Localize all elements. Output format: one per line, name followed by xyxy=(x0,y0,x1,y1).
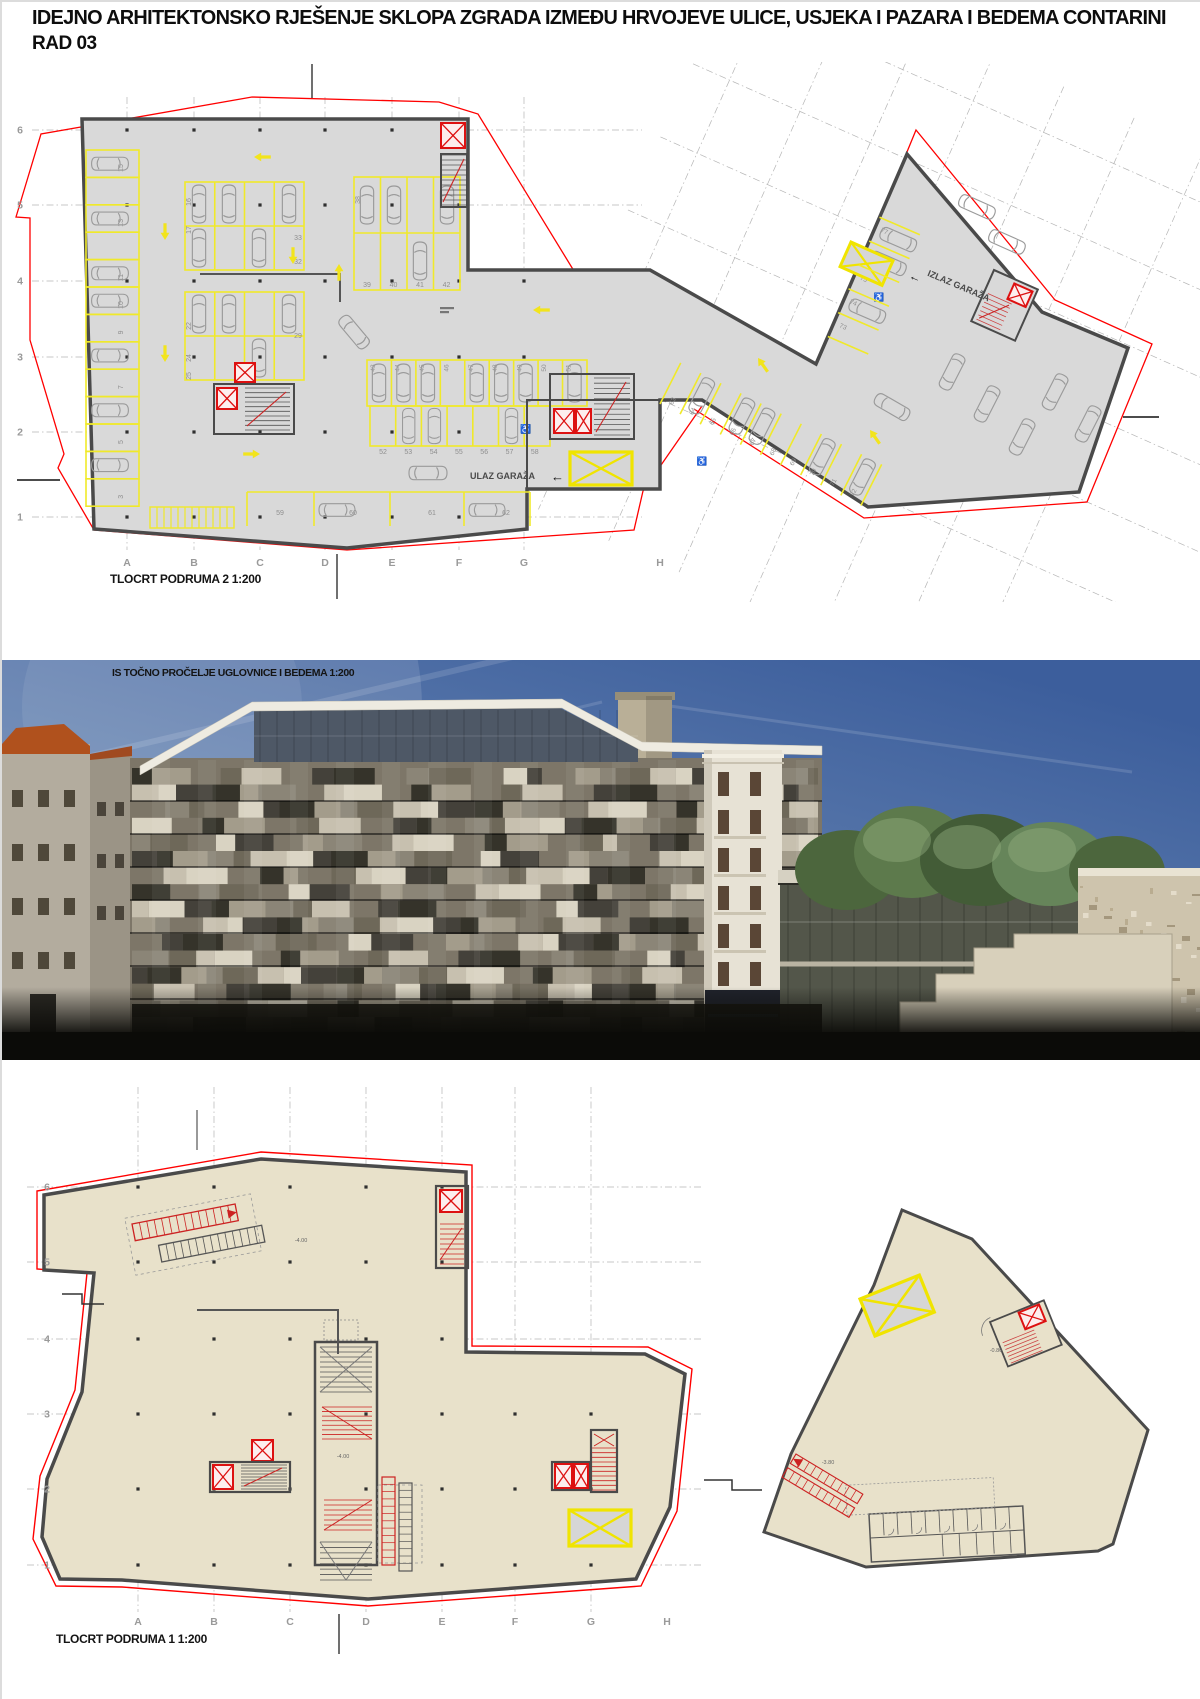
vent-shaft-icon xyxy=(569,1510,631,1546)
label: 41 xyxy=(416,282,424,289)
label: 4 xyxy=(44,1334,50,1346)
label: 40 xyxy=(390,282,398,289)
label: 46 xyxy=(443,364,450,372)
label: 59 xyxy=(276,510,284,517)
elevator-icon xyxy=(440,1190,462,1212)
label: 3 xyxy=(17,352,23,364)
label: A xyxy=(123,557,131,569)
label: E xyxy=(438,1616,445,1628)
label: 25 xyxy=(186,372,193,380)
elevator-icon xyxy=(217,388,237,409)
label: 52 xyxy=(379,449,387,456)
label: G xyxy=(520,557,528,569)
label: 24 xyxy=(186,354,193,362)
plan2-caption: TLOCRT PODRUMA 2 1:200 xyxy=(110,572,261,586)
label: 38 xyxy=(355,196,362,204)
label: D xyxy=(321,557,329,569)
label: 6 xyxy=(44,1182,50,1194)
label: 62 xyxy=(502,510,510,517)
label: 67 xyxy=(749,437,759,447)
label: 5 xyxy=(44,1257,50,1269)
label: 6 xyxy=(17,125,23,137)
label: C xyxy=(256,557,264,569)
label: 29 xyxy=(294,333,302,340)
label: 53 xyxy=(404,449,412,456)
label: -4.00 xyxy=(337,1454,350,1460)
label: 3 xyxy=(44,1409,50,1421)
label: 66 xyxy=(729,427,739,437)
label: 2 xyxy=(44,1484,50,1496)
label: A xyxy=(134,1616,142,1628)
vent-shaft-icon xyxy=(570,452,632,485)
entrance-arrow: ← xyxy=(551,469,564,484)
elevator-icon xyxy=(576,409,591,433)
label: 39 xyxy=(363,282,371,289)
elevator-icon xyxy=(441,123,465,148)
floor-plan-basement-2: 1513111097531617333222242529383940414243… xyxy=(2,62,1200,602)
label: F xyxy=(456,557,463,569)
label: 58 xyxy=(531,449,539,456)
label: 56 xyxy=(480,449,488,456)
label: 2 xyxy=(17,427,23,439)
label: B xyxy=(210,1616,218,1628)
label: D xyxy=(362,1616,370,1628)
vent-main xyxy=(569,1510,631,1546)
label: -0.80 xyxy=(990,1348,1003,1354)
label: 3 xyxy=(118,495,125,499)
label: 1 xyxy=(44,1560,50,1572)
label: E xyxy=(388,557,395,569)
vent-entrance xyxy=(570,452,632,485)
floor-right-piece xyxy=(764,1210,1148,1567)
label: H xyxy=(656,557,664,569)
street-shadow-band xyxy=(2,987,1200,1060)
elevator-icon xyxy=(235,363,255,382)
label: 65 xyxy=(708,416,718,426)
presentation-board: IDEJNO ARHITEKTONSKO RJEŠENJE SKLOPA ZGR… xyxy=(0,0,1200,1699)
label: G xyxy=(587,1616,595,1628)
label: 5 xyxy=(118,440,125,444)
entrance-label: ULAZ GARAŽA xyxy=(470,470,535,481)
label: 33 xyxy=(294,235,302,242)
label: ♿ xyxy=(697,456,708,466)
label: 9 xyxy=(118,330,125,334)
label: 55 xyxy=(455,449,463,456)
elevator-icon xyxy=(554,409,574,433)
label: 57 xyxy=(506,449,514,456)
elevator-icon xyxy=(574,1464,588,1488)
label: 17 xyxy=(186,226,193,234)
elevator-icon xyxy=(213,1465,233,1489)
label: 61 xyxy=(428,510,436,517)
title-block: IDEJNO ARHITEKTONSKO RJEŠENJE SKLOPA ZGR… xyxy=(32,6,1197,55)
label: C xyxy=(286,1616,294,1628)
label: -4.00 xyxy=(295,1238,308,1244)
elevator-icon xyxy=(252,1440,273,1461)
elevator-icon xyxy=(555,1464,572,1488)
floor-plan-basement-1: -4.00-4.00-3.80-0.80ABCDEFGH654321 xyxy=(2,1082,1200,1699)
label: 5 xyxy=(17,200,23,212)
label: F xyxy=(512,1616,519,1628)
board-subtitle: RAD 03 xyxy=(32,33,1197,55)
label: 7 xyxy=(118,385,125,389)
label: 54 xyxy=(430,449,438,456)
plan1-caption: TLOCRT PODRUMA 1 1:200 xyxy=(56,1632,207,1646)
label: 50 xyxy=(541,364,548,372)
board-title: IDEJNO ARHITEKTONSKO RJEŠENJE SKLOPA ZGR… xyxy=(32,6,1162,30)
east-elevation-render xyxy=(2,660,1200,1060)
label: -3.80 xyxy=(822,1460,835,1466)
label: B xyxy=(190,557,198,569)
label: H xyxy=(663,1616,671,1628)
label: 42 xyxy=(443,282,451,289)
label: 1 xyxy=(17,512,23,524)
label: 4 xyxy=(17,276,23,288)
render-caption: IS TOČNO PROČELJE UGLOVNICE I BEDEMA 1:2… xyxy=(112,667,354,679)
